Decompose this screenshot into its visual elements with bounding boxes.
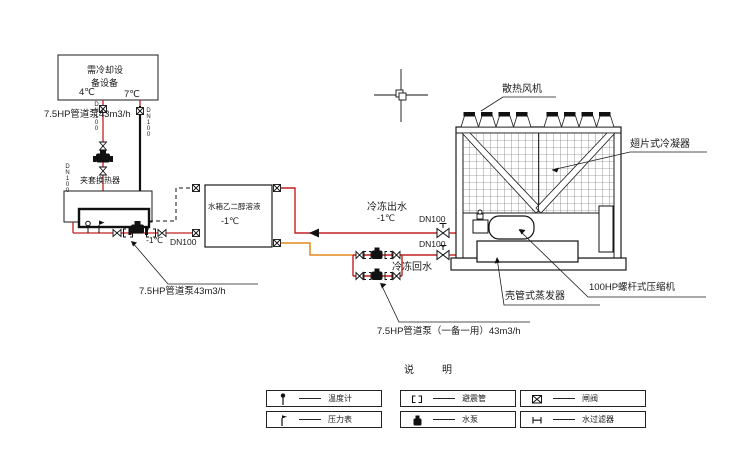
dn100-vertical-label: DN100 — [145, 108, 152, 138]
legend-item-label: 水过滤器 — [582, 414, 614, 425]
gate-valve-icon — [274, 240, 281, 247]
pump-top-label: 7.5HP管道泵43m3/h — [44, 110, 131, 120]
valve-icon — [393, 252, 400, 259]
condenser-label: 翅片式冷凝器 — [630, 139, 690, 150]
pump-icon — [372, 269, 383, 281]
valve-icon — [100, 142, 107, 150]
pump-branch-top — [356, 248, 400, 260]
legend-item-label: 温度计 — [328, 393, 352, 404]
pump-icon — [93, 150, 113, 163]
equipment-box-label-line1: 需冷却设 — [87, 66, 123, 76]
chilled-return-label: 冷冻回水 — [392, 262, 432, 273]
legend-item-label: 压力表 — [328, 414, 352, 425]
flow-arrow-icon — [309, 229, 319, 238]
chilled-return-dn-label: DN100 — [419, 240, 445, 249]
pump-icon — [410, 413, 424, 427]
legend-dash — [299, 398, 321, 399]
legend-item-flex-pipe: 避震管 — [400, 390, 516, 407]
flex-pipe-icon — [410, 392, 424, 406]
dn100-vertical-label: DN100 — [64, 164, 71, 194]
tank-label-line2: -1℃ — [221, 217, 239, 227]
equipment-box-label-line2: 备设备 — [91, 79, 118, 89]
valve-icon — [100, 167, 107, 175]
crosshair-marker — [374, 69, 428, 122]
control-cabinet — [599, 206, 613, 252]
legend-item-thermometer: 温度计 — [266, 390, 382, 407]
gate-valve-icon — [137, 108, 144, 115]
return-temp-label: 7℃ — [124, 90, 140, 100]
pump-left-label: 7.5HP管道泵43m3/h — [139, 287, 226, 297]
legend-dash — [299, 419, 321, 420]
thermometer-icon — [276, 392, 290, 406]
supply-temp-label: 4℃ — [79, 88, 95, 98]
legend-item-label: 闸阀 — [582, 393, 598, 404]
fan-label: 散热风机 — [502, 84, 542, 95]
legend-dash — [553, 398, 575, 399]
legend-dash — [433, 398, 455, 399]
tank-label-line1: 水箱乙二醇溶液 — [208, 203, 261, 211]
fan-bank-left — [461, 112, 531, 127]
evaporator — [477, 241, 578, 262]
glycol-return-dashed — [149, 185, 200, 222]
evaporator-label: 壳管式蒸发器 — [505, 291, 565, 302]
pressure-gauge-icon — [276, 413, 290, 427]
valve-icon — [356, 273, 363, 280]
valve-icon — [356, 252, 363, 259]
legend-item-pressure-gauge: 压力表 — [266, 411, 382, 428]
legend-item-label: 水泵 — [462, 414, 478, 425]
gate-valve-icon — [530, 392, 544, 406]
piping-diagram-canvas: 需冷却设 备设备 4℃ 7℃ DN100 DN100 DN100 7.5HP管道… — [0, 0, 756, 459]
fan-bank-right — [544, 112, 614, 127]
main-dn-label: DN100 — [170, 238, 196, 247]
legend-item-label: 避震管 — [462, 393, 486, 404]
pump-icon — [372, 248, 383, 260]
legend-title: 说 明 — [404, 365, 461, 376]
chilled-out-label: 冷冻出水 — [367, 202, 407, 213]
gate-valve-icon — [193, 185, 200, 192]
dn100-valve-icon — [437, 224, 449, 238]
legend-item-pump: 水泵 — [400, 411, 516, 428]
legend-dash — [433, 419, 455, 420]
main-temp-label: -1℃ — [146, 236, 163, 245]
strainer-icon — [530, 413, 544, 427]
heat-exchanger-label: 夹套换热器 — [80, 177, 120, 186]
legend-dash — [553, 419, 575, 420]
compressor-label: 100HP螺杆式压缩机 — [589, 283, 675, 293]
legend-item-gate-valve: 闸阀 — [520, 390, 646, 407]
valve-icon — [393, 273, 400, 280]
chilled-out-dn-label: DN100 — [419, 215, 445, 224]
gate-valve-icon — [193, 230, 200, 237]
valve-icon — [113, 230, 121, 237]
gate-valve-icon — [274, 185, 281, 192]
pump-duty-standby-label: 7.5HP管道泵（一备一用）43m3/h — [377, 327, 521, 337]
chiller-unit — [451, 112, 626, 270]
glycol-tank — [205, 185, 281, 248]
legend-item-strainer: 水过滤器 — [520, 411, 646, 428]
chilled-out-temp-label: -1℃ — [377, 214, 395, 224]
